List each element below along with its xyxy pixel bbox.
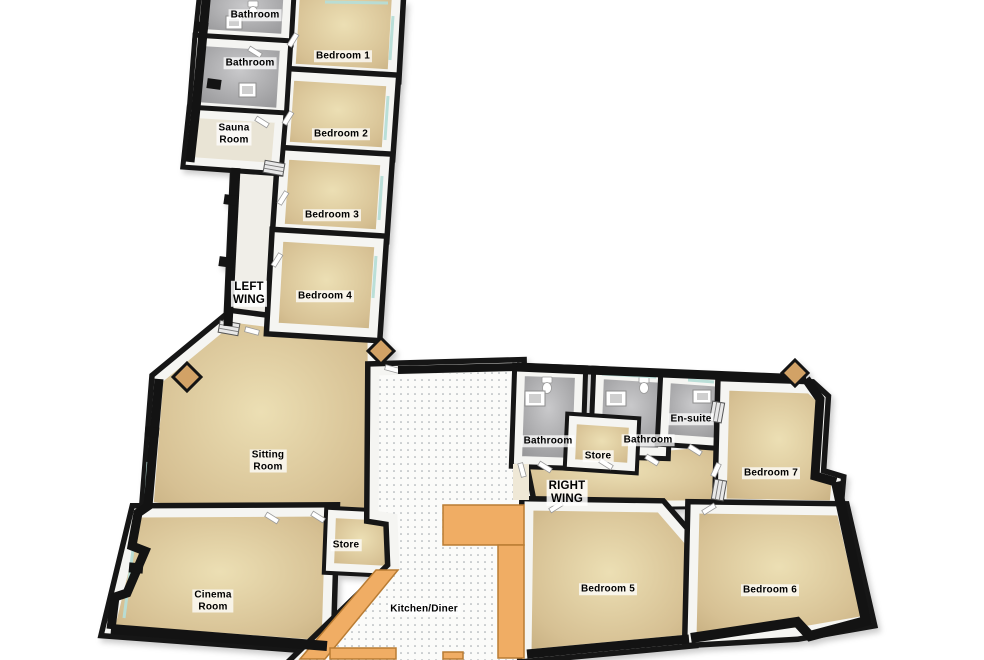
room-floor xyxy=(196,42,284,112)
floor-plan-root: Bathroom Bathroom Sauna Room Bedroom 1 B… xyxy=(0,0,984,660)
window-icon xyxy=(325,2,388,3)
room-label-bedroom-5: Bedroom 5 xyxy=(579,583,637,595)
room-label-cinema: Cinema Room xyxy=(192,590,233,613)
wing-label-left: LEFT WING xyxy=(231,281,267,307)
shower-icon xyxy=(606,391,626,406)
exterior-wall xyxy=(398,367,517,370)
room-sitting xyxy=(149,318,373,527)
room-bathroom-2 xyxy=(196,42,284,112)
floor-plan-svg xyxy=(0,0,984,660)
toilet-icon xyxy=(639,377,649,394)
room-label-en-suite: En-suite xyxy=(668,413,713,425)
room-label-bedroom-3: Bedroom 3 xyxy=(303,209,361,221)
shower-icon xyxy=(693,390,711,403)
shower-icon xyxy=(525,391,545,406)
room-bedroom-2 xyxy=(285,76,391,152)
room-bedroom-5 xyxy=(527,506,692,654)
room-floor xyxy=(291,0,397,74)
wing-label-right: RIGHT WING xyxy=(547,480,588,506)
room-floor xyxy=(110,512,330,645)
shower-icon xyxy=(239,83,256,97)
pilaster xyxy=(145,426,160,437)
room-bedroom-4 xyxy=(274,237,379,333)
room-label-sitting: Sitting Room xyxy=(250,450,287,473)
room-label-bedroom-4: Bedroom 4 xyxy=(296,290,354,302)
pilaster xyxy=(129,562,144,573)
counter xyxy=(443,652,463,659)
room-label-bathroom-r1: Bathroom xyxy=(522,435,575,447)
room-bedroom-6 xyxy=(692,509,866,638)
pilaster xyxy=(223,194,238,206)
counter xyxy=(330,648,396,659)
room-bedroom-1 xyxy=(291,0,397,74)
room-label-store-left: Store xyxy=(331,539,362,551)
room-label-bathroom-r2: Bathroom xyxy=(622,434,675,446)
counter xyxy=(443,505,524,545)
room-label-bedroom-7: Bedroom 7 xyxy=(742,467,800,479)
window-icon xyxy=(688,380,714,382)
pilaster xyxy=(193,21,208,33)
room-bedroom-3 xyxy=(280,155,385,234)
room-label-bathroom-2: Bathroom xyxy=(224,57,277,69)
room-floor xyxy=(274,237,379,333)
room-label-kitchen-diner: Kitchen/Diner xyxy=(388,603,460,615)
room-floor xyxy=(692,509,866,638)
room-label-sauna: Sauna Room xyxy=(216,123,251,146)
room-floor xyxy=(527,506,692,654)
room-label-bedroom-1: Bedroom 1 xyxy=(314,50,372,62)
room-label-bedroom-2: Bedroom 2 xyxy=(312,128,370,140)
room-floor xyxy=(285,76,391,152)
room-label-bathroom-top: Bathroom xyxy=(229,9,282,21)
room-cinema xyxy=(110,512,330,645)
pilaster xyxy=(218,256,233,268)
room-label-bedroom-6: Bedroom 6 xyxy=(741,584,799,596)
room-floor xyxy=(280,155,385,234)
room-label-store-right: Store xyxy=(583,450,614,462)
pilaster xyxy=(206,78,221,90)
counter xyxy=(498,545,524,658)
